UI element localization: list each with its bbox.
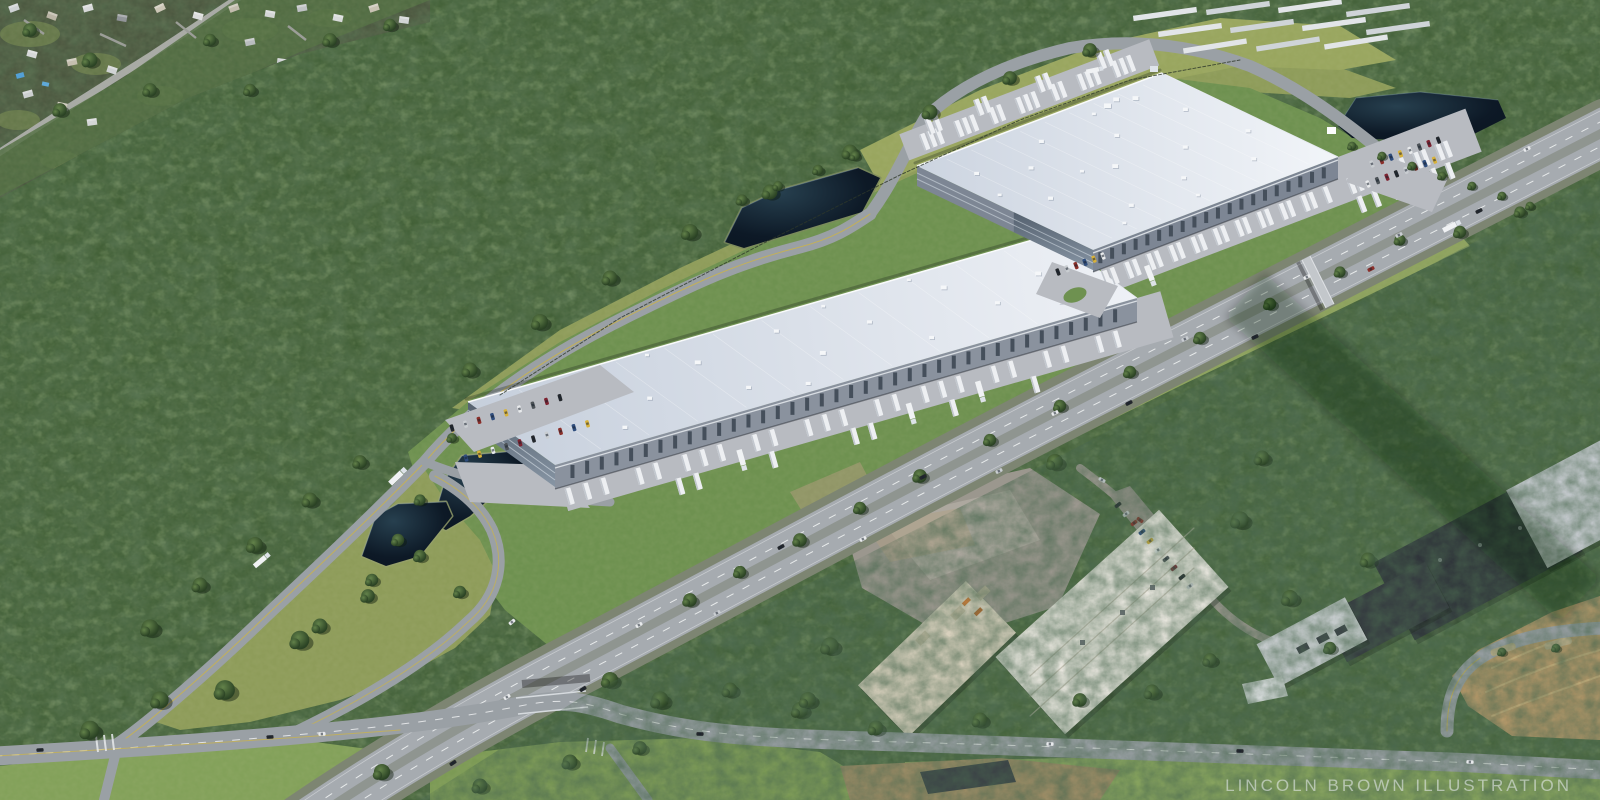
rooftop-unit xyxy=(821,305,825,308)
dock-door xyxy=(966,351,970,364)
road-vehicle xyxy=(318,732,325,736)
dock-door xyxy=(1025,335,1029,348)
dock-door xyxy=(717,423,721,436)
rooftop-unit xyxy=(1029,166,1034,169)
dock-door xyxy=(570,465,574,478)
dock-door xyxy=(893,372,897,385)
rooftop-unit xyxy=(941,285,947,289)
dock-door xyxy=(1310,172,1314,183)
dock-door xyxy=(834,389,838,402)
dock-door xyxy=(732,419,736,432)
dock-door xyxy=(1287,181,1291,192)
rooftop-unit xyxy=(1092,113,1096,116)
dock-door xyxy=(1192,216,1196,227)
dock-door xyxy=(673,436,677,449)
rooftop-unit xyxy=(974,172,979,175)
roof-penthouse xyxy=(1150,66,1158,72)
rooftop-unit xyxy=(1251,157,1256,160)
dock-door xyxy=(878,377,882,390)
dock-door xyxy=(1263,190,1267,201)
dock-door xyxy=(908,368,912,381)
rooftop-unit xyxy=(695,360,701,364)
dock-door xyxy=(1040,330,1044,343)
dock-door xyxy=(1113,309,1117,322)
dock-door xyxy=(1054,326,1058,339)
rooftop-unit xyxy=(645,354,649,357)
rooftop-unit xyxy=(867,320,872,323)
rooftop-unit xyxy=(1133,96,1139,100)
rooftop-unit xyxy=(622,426,627,429)
dock-door xyxy=(1122,243,1126,254)
rooftop-unit xyxy=(1181,176,1186,179)
dock-door xyxy=(1084,318,1088,331)
dock-door xyxy=(702,427,706,440)
dock-door xyxy=(614,452,618,465)
rooftop-unit xyxy=(929,336,934,339)
aerial-site-rendering: LINCOLN BROWN ILLUSTRATION xyxy=(0,0,1600,800)
rooftop-unit xyxy=(998,194,1002,197)
dock-door xyxy=(864,381,868,394)
dock-door xyxy=(1181,221,1185,232)
rooftop-unit xyxy=(1122,222,1126,225)
dock-door xyxy=(790,402,794,415)
rooftop-unit xyxy=(806,382,811,385)
rendering-canvas xyxy=(0,0,1600,800)
road-vehicle xyxy=(1046,742,1053,746)
dock-door xyxy=(1204,212,1208,223)
road-vehicle xyxy=(696,732,703,736)
rooftop-unit xyxy=(746,386,751,389)
rooftop-unit xyxy=(1048,197,1053,200)
dock-door xyxy=(776,406,780,419)
illustrator-watermark: LINCOLN BROWN ILLUSTRATION xyxy=(1225,776,1572,796)
dock-door xyxy=(1010,339,1014,352)
dock-door xyxy=(1169,225,1173,236)
dock-door xyxy=(805,398,809,411)
rooftop-unit xyxy=(995,301,1000,304)
rooftop-unit xyxy=(647,397,652,400)
rooftop-unit xyxy=(1039,140,1044,143)
rooftop-unit xyxy=(1246,129,1251,132)
dock-door xyxy=(937,360,941,373)
dock-door xyxy=(1239,199,1243,210)
dock-door xyxy=(1145,234,1149,245)
road-vehicle xyxy=(36,748,43,752)
dock-door xyxy=(952,356,956,369)
rooftop-unit xyxy=(1183,108,1188,111)
dock-door xyxy=(849,385,853,398)
rooftop-unit xyxy=(1112,164,1118,168)
dock-door xyxy=(820,393,824,406)
rooftop-unit xyxy=(1113,97,1119,101)
road-vehicle xyxy=(1236,749,1243,753)
dock-door xyxy=(1216,208,1220,219)
dock-door xyxy=(585,461,589,474)
dock-door xyxy=(1275,185,1279,196)
dock-door xyxy=(600,457,604,470)
road-vehicle xyxy=(266,735,273,739)
rooftop-unit xyxy=(1129,204,1134,207)
rooftop-unit xyxy=(1080,170,1084,173)
dock-door xyxy=(1069,322,1073,335)
dock-door xyxy=(1110,248,1114,259)
dock-door xyxy=(1157,230,1161,241)
dock-door xyxy=(981,347,985,360)
dock-door xyxy=(761,410,765,423)
dock-door xyxy=(1134,239,1138,250)
dock-door xyxy=(1251,194,1255,205)
rooftop-unit xyxy=(820,351,826,355)
road-vehicle xyxy=(1466,760,1473,764)
dock-door xyxy=(746,414,750,427)
rooftop-unit xyxy=(1104,103,1111,108)
dock-door xyxy=(1228,203,1232,214)
rooftop-unit xyxy=(1196,194,1200,197)
rooftop-unit xyxy=(1114,134,1119,137)
dock-door xyxy=(1298,176,1302,187)
dock-door xyxy=(629,448,633,461)
dock-door xyxy=(688,431,692,444)
rooftop-unit xyxy=(1183,145,1188,148)
rooftop-unit xyxy=(1035,272,1041,276)
rooftop-unit xyxy=(774,329,779,332)
dock-door xyxy=(1322,167,1326,178)
dock-door xyxy=(658,440,662,453)
dock-door xyxy=(922,364,926,377)
rooftop-unit xyxy=(907,279,911,282)
roof-penthouse xyxy=(1327,127,1336,134)
dock-door xyxy=(996,343,1000,356)
dock-door xyxy=(644,444,648,457)
